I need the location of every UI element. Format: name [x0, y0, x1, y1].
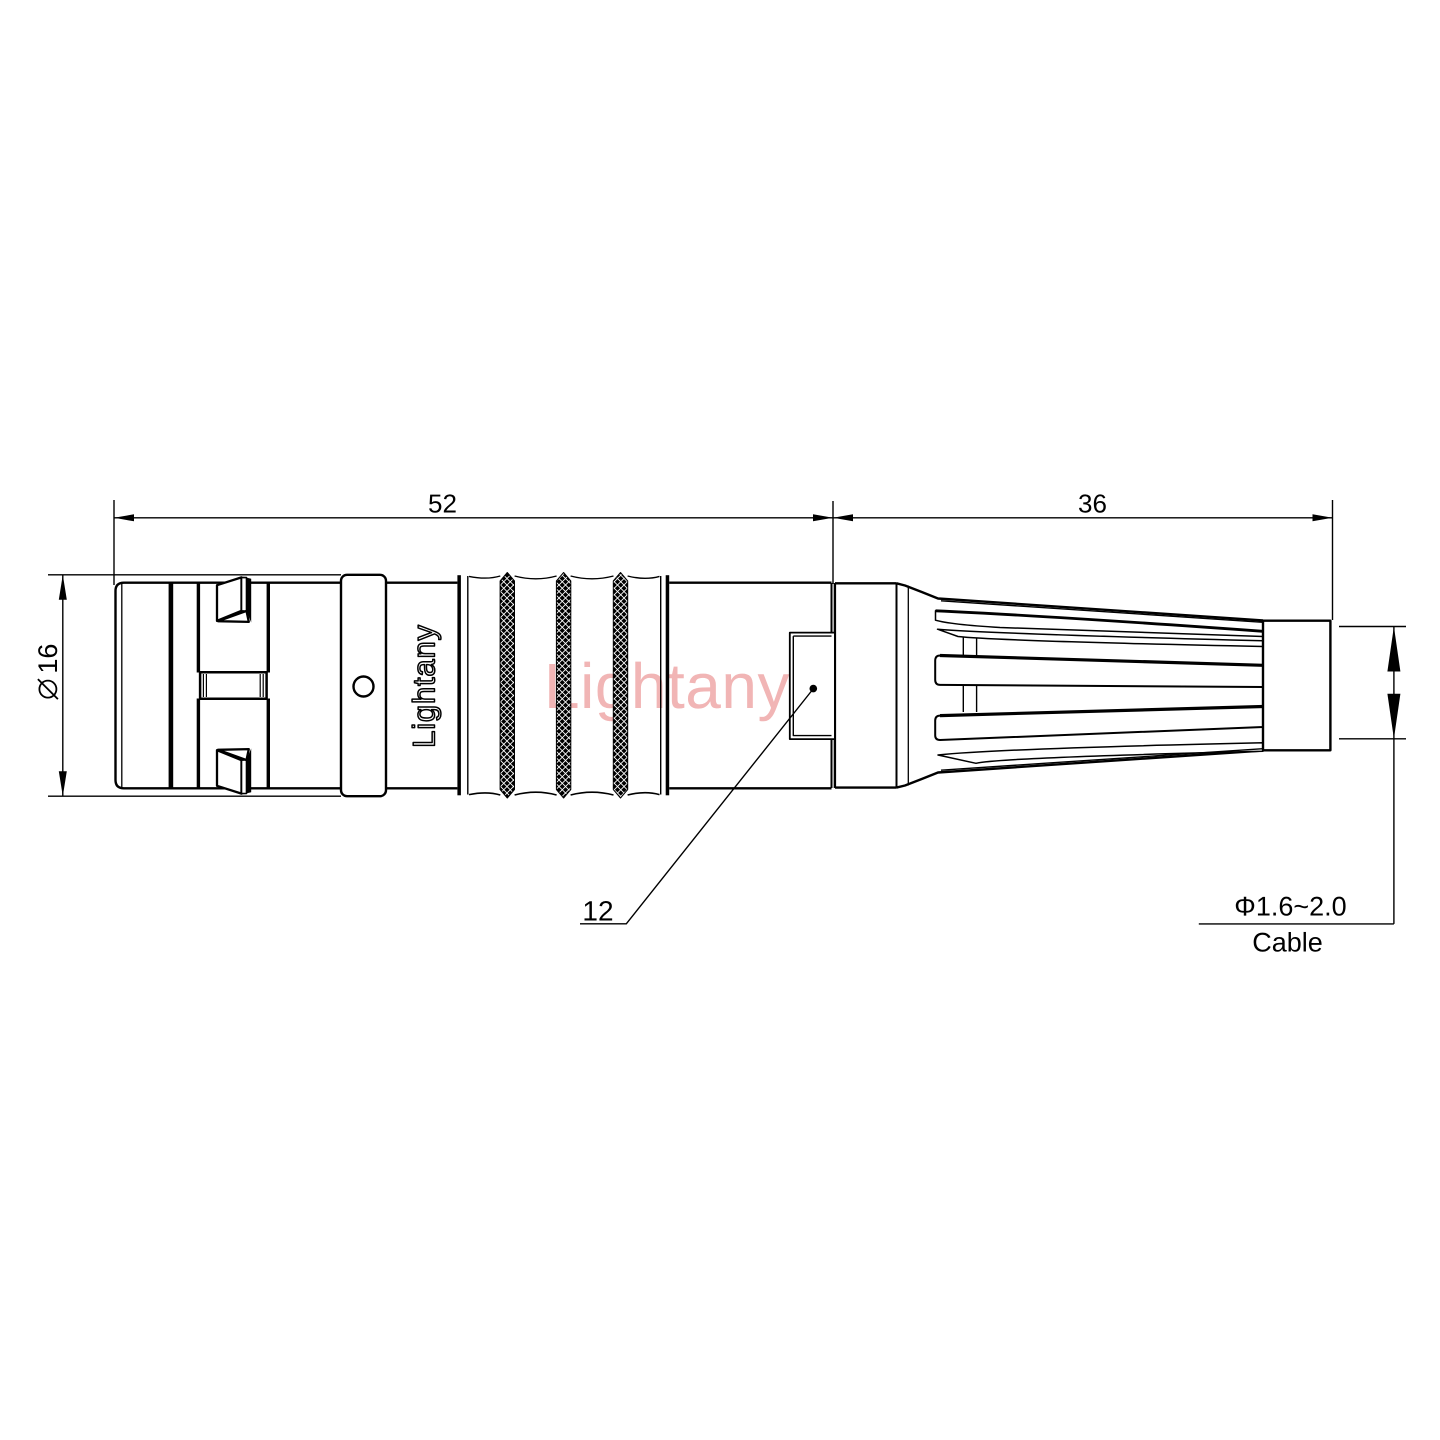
svg-text:52: 52	[428, 488, 457, 518]
svg-text:Φ1.6~2.0: Φ1.6~2.0	[1234, 892, 1346, 922]
svg-text:Lightany: Lightany	[407, 624, 442, 748]
svg-text:16: 16	[33, 644, 63, 674]
svg-text:36: 36	[1078, 488, 1107, 518]
svg-text:Cable: Cable	[1252, 928, 1323, 958]
svg-text:12: 12	[582, 896, 613, 927]
